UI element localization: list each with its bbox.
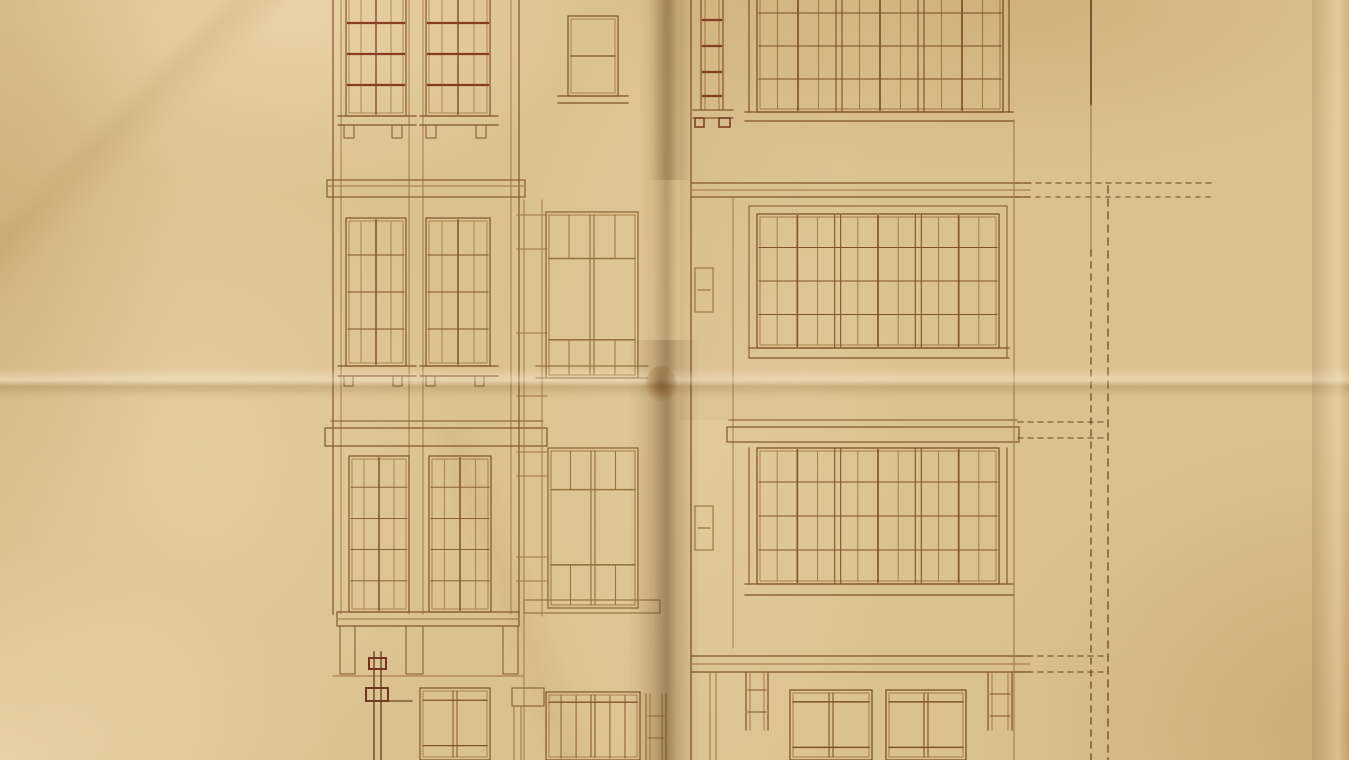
bay-corbel-left <box>340 626 355 674</box>
main-window-3f <box>757 0 1003 112</box>
bay-sill-top-left <box>338 116 416 125</box>
bay-apron-top-right-a <box>426 125 436 138</box>
bay-corbel-right <box>503 626 518 674</box>
middle-window-1f <box>548 448 638 608</box>
bay-window-low-left <box>349 456 409 612</box>
paper-wrinkle-bottom <box>300 430 720 760</box>
bay-window-mid-left <box>346 218 406 366</box>
downpipe-elbow-a <box>369 658 386 669</box>
stair-window-foot-a <box>695 118 704 127</box>
bay-sill-band <box>337 612 519 626</box>
bay-apron-top-left-b <box>392 125 402 138</box>
elevation-drawing <box>0 0 1349 760</box>
bay-cornice-1-box <box>327 180 525 197</box>
bay-apron-mid-left-b <box>393 376 402 386</box>
paper-wrinkle-right <box>680 0 1200 420</box>
string-course-box <box>727 427 1019 442</box>
middle-window-2f-sill <box>536 366 648 378</box>
paper-wrinkle-top-left <box>0 0 420 300</box>
ground-bracket-left <box>746 672 768 730</box>
bay-sill-top-right <box>420 116 498 125</box>
middle-window-1f-sill <box>524 600 660 613</box>
main-window-2f-architrave <box>749 206 1007 358</box>
attic-window-sill <box>558 96 628 103</box>
bay-apron-top-right-b <box>476 125 486 138</box>
crease-bracket <box>646 694 666 760</box>
stair-window-foot-b <box>719 118 730 127</box>
main-window-1f-sill <box>745 584 1013 595</box>
strip-window-1f <box>695 506 713 550</box>
ground-middle-cap <box>512 688 544 706</box>
ground-window-left <box>420 688 490 760</box>
bay-sill-mid-right <box>420 366 498 376</box>
bay-apron-mid-left-a <box>344 376 353 386</box>
bay-corbel-mid <box>406 626 423 674</box>
stair-window-sill <box>693 110 733 118</box>
fold-damage-spot <box>645 366 677 402</box>
bay-window-top-right <box>426 0 490 116</box>
middle-window-2f <box>546 212 638 378</box>
bay-cornice-2-top <box>331 421 543 428</box>
main-window-2f-sill <box>749 348 1009 358</box>
vertical-fold-crease-lower <box>628 340 700 760</box>
bay-window-top-left <box>346 0 406 116</box>
main-window-3f-sill <box>745 112 1013 121</box>
string-course-top <box>729 420 1017 427</box>
attic-window <box>568 16 618 96</box>
ground-bracket-right <box>988 672 1012 730</box>
blueprint-photo <box>0 0 1349 760</box>
ground-window-middle <box>546 692 640 760</box>
main-window-1f <box>757 448 999 584</box>
main-window-2f <box>757 214 999 348</box>
bay-window-mid-right <box>426 218 490 366</box>
ground-window-a <box>790 690 872 760</box>
bay-apron-mid-right-a <box>426 376 435 386</box>
right-edge-crease <box>1312 0 1349 760</box>
downpipe-elbow-b <box>366 688 388 701</box>
ground-window-b <box>886 690 966 760</box>
bay-window-low-right <box>429 456 491 612</box>
vertical-fold-crease <box>638 0 690 760</box>
bay-apron-top-left-a <box>344 125 354 138</box>
bay-apron-mid-right-b <box>475 376 484 386</box>
horizontal-fold-crease <box>0 368 1349 398</box>
bay-cornice-2-box <box>325 428 547 446</box>
bay-sill-mid-left <box>338 366 416 376</box>
vertical-fold-crease-top <box>648 0 692 180</box>
strip-window-2f <box>695 268 713 312</box>
stair-window <box>701 0 723 110</box>
